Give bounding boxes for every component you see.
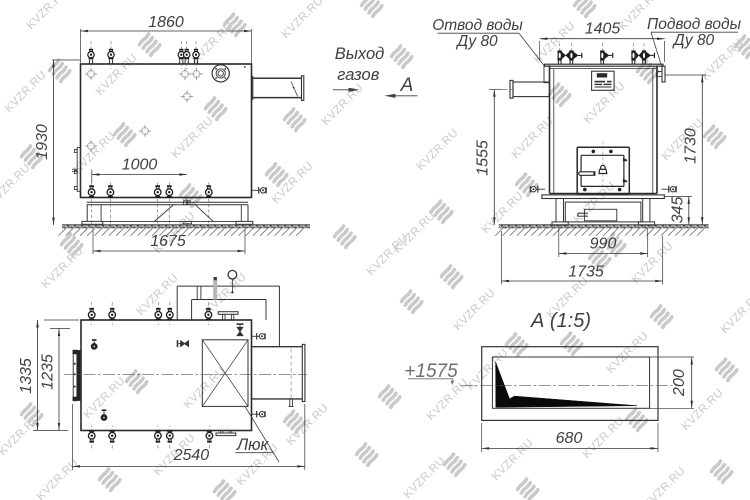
svg-text:1405: 1405 <box>585 21 621 38</box>
svg-text:1930: 1930 <box>34 124 51 160</box>
svg-text:1735: 1735 <box>568 264 604 281</box>
svg-text:Ду 80: Ду 80 <box>672 32 715 49</box>
svg-text:1860: 1860 <box>148 14 184 31</box>
svg-text:Выход: Выход <box>335 45 385 63</box>
svg-text:1235: 1235 <box>40 354 57 390</box>
svg-text:А (1:5): А (1:5) <box>530 310 591 332</box>
svg-text:Люк: Люк <box>236 436 270 454</box>
svg-text:Отвод воды: Отвод воды <box>432 17 523 34</box>
svg-text:1000: 1000 <box>122 157 158 174</box>
svg-text:А: А <box>400 75 414 96</box>
svg-text:200: 200 <box>671 369 688 397</box>
svg-text:газов: газов <box>337 66 379 84</box>
svg-text:1675: 1675 <box>150 233 186 250</box>
svg-text:1730: 1730 <box>683 128 700 164</box>
svg-text:Ду 80: Ду 80 <box>455 33 498 50</box>
svg-text:990: 990 <box>590 236 617 253</box>
svg-text:1555: 1555 <box>475 140 492 176</box>
svg-text:Подвод воды: Подвод воды <box>647 16 742 33</box>
svg-text:1335: 1335 <box>18 358 35 394</box>
svg-text:2540: 2540 <box>173 447 210 464</box>
svg-text:345: 345 <box>669 197 686 224</box>
svg-text:680: 680 <box>556 430 583 447</box>
